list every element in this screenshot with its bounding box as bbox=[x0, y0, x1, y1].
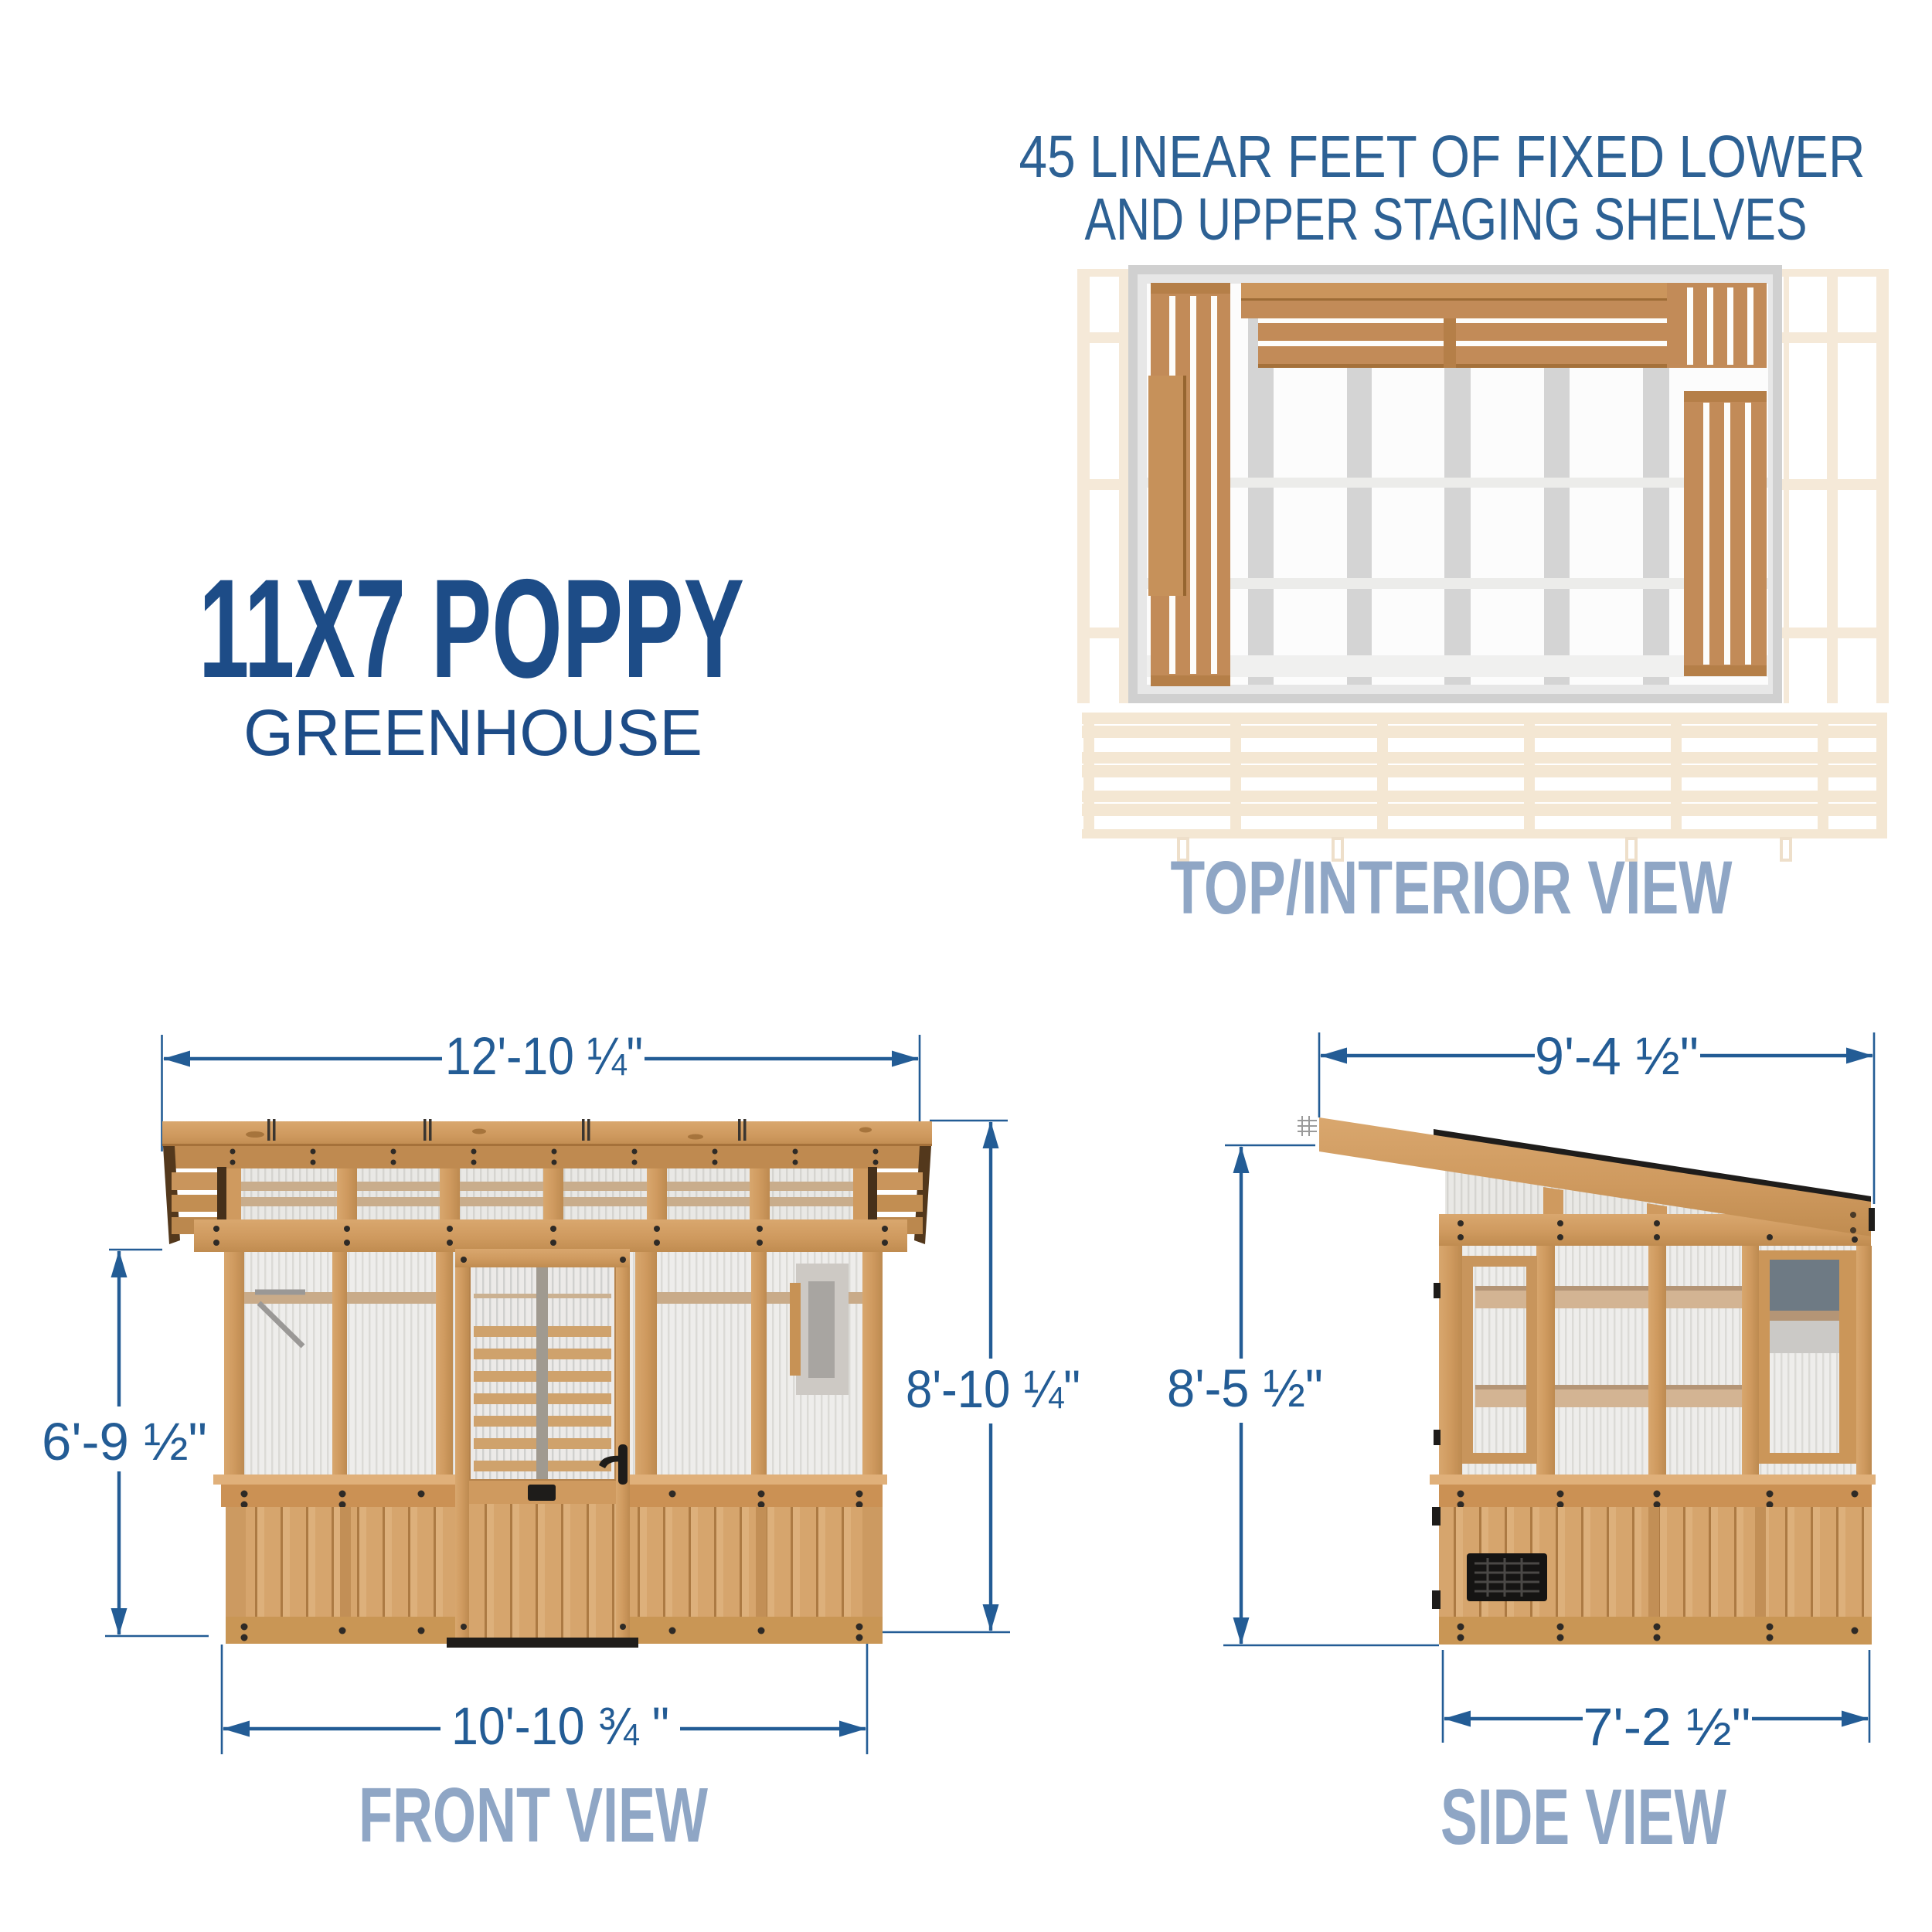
svg-text:8'-5 ½": 8'-5 ½" bbox=[1167, 1359, 1323, 1418]
svg-text:9'-4 ½": 9'-4 ½" bbox=[1535, 1026, 1699, 1086]
svg-text:11X7 POPPY: 11X7 POPPY bbox=[199, 549, 744, 707]
svg-text:TOP/INTERIOR VIEW: TOP/INTERIOR VIEW bbox=[1171, 845, 1733, 930]
svg-text:6'-9 ½": 6'-9 ½" bbox=[42, 1412, 207, 1471]
svg-text:45 LINEAR FEET OF FIXED LOWER: 45 LINEAR FEET OF FIXED LOWER bbox=[1019, 124, 1866, 190]
svg-text:7'-2 ½": 7'-2 ½" bbox=[1583, 1697, 1751, 1757]
svg-text:GREENHOUSE: GREENHOUSE bbox=[243, 696, 702, 769]
svg-text:AND UPPER STAGING SHELVES: AND UPPER STAGING SHELVES bbox=[1085, 186, 1808, 253]
svg-text:10'-10 ¾ ": 10'-10 ¾ " bbox=[451, 1696, 669, 1756]
svg-text:SIDE VIEW: SIDE VIEW bbox=[1440, 1773, 1727, 1861]
svg-text:FRONT VIEW: FRONT VIEW bbox=[359, 1772, 708, 1859]
svg-text:8'-10 ¼": 8'-10 ¼" bbox=[906, 1359, 1080, 1419]
svg-text:12'-10 ¼": 12'-10 ¼" bbox=[445, 1026, 643, 1086]
